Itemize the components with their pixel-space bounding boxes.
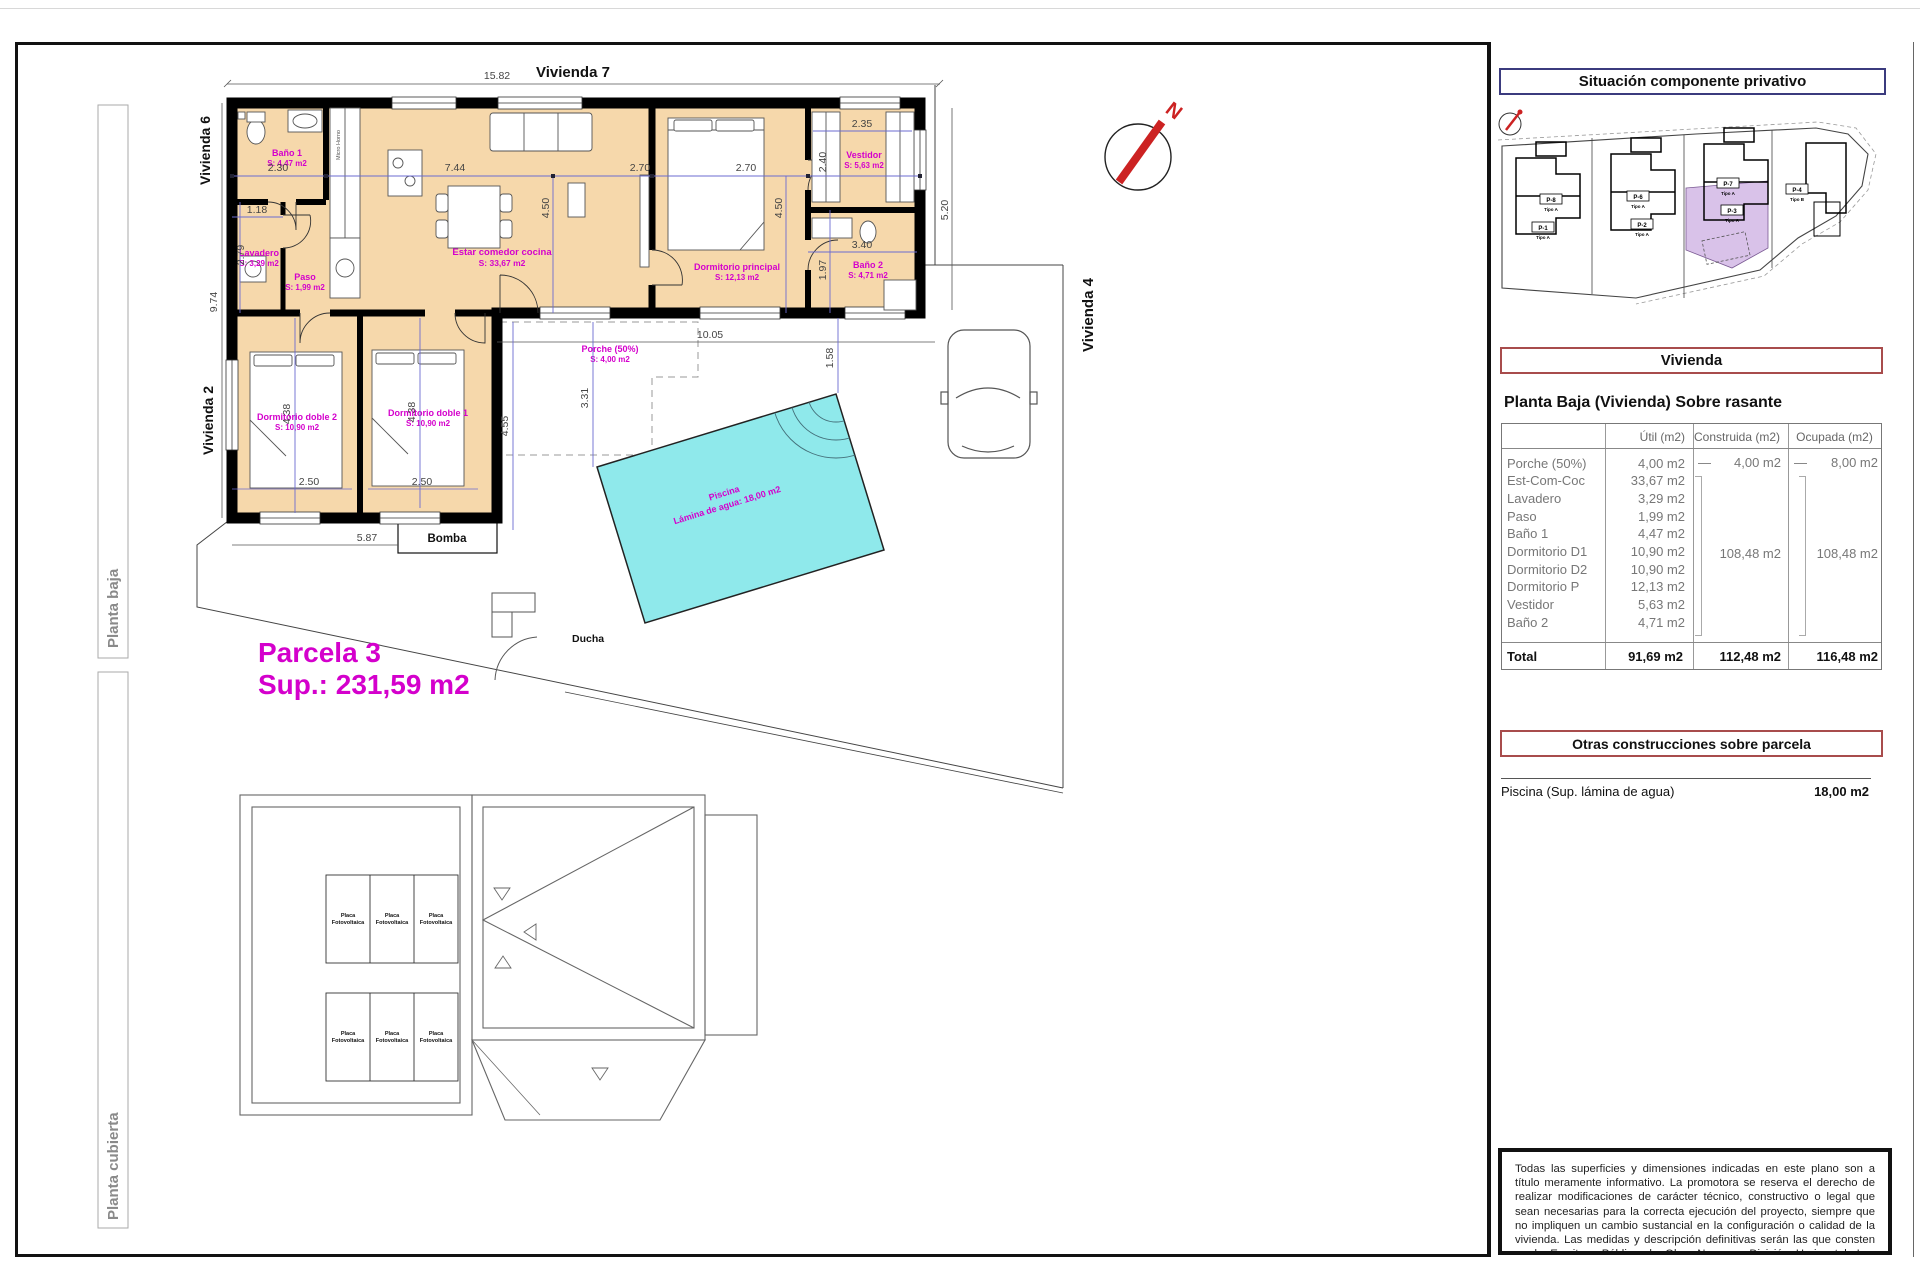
scan-top-line [0, 8, 1920, 9]
table-row: Baño 14,47 m2 [1502, 525, 1881, 543]
panel-label: Fotovoltaica [420, 920, 453, 926]
total-label: Total [1507, 649, 1537, 664]
table-row: Lavadero3,29 m2 [1502, 489, 1881, 507]
frame-outer-edge [1913, 42, 1914, 1257]
bomba-label: Bomba [428, 533, 468, 545]
car-icon [941, 330, 1037, 458]
dim-porche-h: 4.55 [499, 416, 511, 437]
dim-vest-w: 2.35 [852, 118, 873, 130]
info-sidebar: Situación componente privativo [1487, 42, 1905, 1257]
parcel-tipo: Tipo A [1635, 232, 1649, 237]
porche-construida: 4,00 m2 [1693, 455, 1781, 471]
ocupada-group-value: 108,48 m2 [1788, 546, 1878, 562]
panel-label: Fotovoltaica [332, 1038, 365, 1044]
panel-label: Fotovoltaica [376, 920, 409, 926]
shower-area [492, 593, 537, 680]
total-ocupada: 116,48 m2 [1788, 649, 1878, 664]
planta-cubierta-label: Planta cubierta [105, 1112, 122, 1220]
room-dormd1-name: Dormitorio doble 1 [388, 408, 468, 418]
dim-porche-w: 10.05 [697, 329, 723, 341]
room-paso-name: Paso [294, 272, 316, 282]
table-row: Baño 24,71 m2 [1502, 613, 1881, 631]
parcel-id: P-6 [1633, 195, 1643, 201]
room-bano1-name: Baño 1 [272, 148, 302, 158]
table-row: Dormitorio D210,90 m2 [1502, 560, 1881, 578]
dim-porche-h2: 3.31 [579, 388, 591, 409]
piscina-row-value: 18,00 m2 [1501, 784, 1869, 799]
ducha-label: Ducha [572, 633, 604, 645]
row-util: 10,90 m2 [1607, 544, 1693, 559]
parcel-tipo: Tipo A [1721, 191, 1735, 196]
room-bano2-area: S: 4,71 m2 [848, 271, 888, 280]
parcel-id: P-2 [1637, 223, 1647, 229]
parcel-tipo: Tipo B [1790, 197, 1805, 202]
row-name: Baño 1 [1502, 526, 1607, 541]
row-name: Vestidor [1502, 597, 1607, 612]
mini-compass-icon [1499, 110, 1523, 136]
otras-title-box: Otras construcciones sobre parcela [1500, 730, 1883, 757]
row-util: 10,90 m2 [1607, 562, 1693, 577]
col-header-construida: Construida (m2) [1686, 430, 1788, 444]
plan-sheet: Planta baja Planta cubierta Piscina Lámi… [0, 0, 1920, 1280]
row-name: Lavadero [1502, 491, 1607, 506]
parcel-id: P-7 [1723, 182, 1733, 188]
table-row: Paso1,99 m2 [1502, 507, 1881, 525]
dim-d1-w: 2.50 [412, 476, 433, 488]
row-util: 33,67 m2 [1607, 473, 1693, 488]
panel-label: Placa [385, 913, 400, 919]
roof-plan [240, 795, 757, 1120]
parcel-id: P-4 [1792, 188, 1802, 194]
parcel-tipo: Tipo A [1631, 204, 1645, 209]
panel-label: Fotovoltaica [420, 1038, 453, 1044]
row-name: Dormitorio P [1502, 579, 1607, 594]
plan-label-bars: Planta baja Planta cubierta [98, 105, 128, 1228]
north-compass-icon: N [1105, 98, 1186, 190]
row-name: Paso [1502, 509, 1607, 524]
parcel-tipo: Tipo A [1725, 218, 1739, 223]
planta-baja-heading: Planta Baja (Vivienda) Sobre rasante [1504, 394, 1782, 412]
porche-ocupada: 8,00 m2 [1788, 455, 1878, 471]
table-row: Est-Com-Coc33,67 m2 [1502, 472, 1881, 490]
table-row: Vestidor5,63 m2 [1502, 596, 1881, 614]
row-util: 12,13 m2 [1607, 579, 1693, 594]
dim-left-h: 9.74 [208, 292, 220, 313]
vivienda-title-box: Vivienda [1500, 347, 1883, 374]
construida-bracket-tick [1695, 476, 1702, 477]
total-util: 91,69 m2 [1605, 649, 1683, 664]
room-estar-area: S: 33,67 m2 [479, 258, 526, 268]
dim-porche-hr: 1.58 [824, 348, 836, 369]
total-construida: 112,48 m2 [1693, 649, 1781, 664]
situacion-title: Situación componente privativo [1579, 73, 1807, 90]
dim-right-h: 5.20 [939, 200, 951, 221]
room-porche-name: Porche (50%) [581, 344, 638, 354]
col-header-util: Útil (m2) [1605, 430, 1689, 444]
room-vestidor-name: Vestidor [846, 150, 882, 160]
dim-dorm-w: 2.70 [630, 162, 651, 174]
table-row: Dormitorio P12,13 m2 [1502, 578, 1881, 596]
site-houses [1516, 128, 1846, 236]
north-letter: N [1161, 98, 1186, 124]
floor-plan-canvas: Planta baja Planta cubierta Piscina Lámi… [15, 42, 1487, 1257]
legal-disclaimer: Todas las superficies y dimensiones indi… [1498, 1148, 1892, 1255]
site-plan-inset: P-8 P-1 P-6 P-2 P-7 P-3 P-4 Tipo A Tipo … [1496, 98, 1896, 308]
row-name: Est-Com-Coc [1502, 473, 1607, 488]
room-dormp-name: Dormitorio principal [694, 262, 780, 272]
panel-label: Placa [341, 913, 356, 919]
parcel-id: P-3 [1727, 209, 1737, 215]
room-vestidor-area: S: 5,63 m2 [844, 161, 884, 170]
dim-dorm-w2: 2.70 [736, 162, 757, 174]
dim-bottom-w: 5.87 [357, 532, 378, 544]
parcela-title: Parcela 3 [258, 637, 381, 668]
micro-horno-label: Micro Horno [336, 130, 342, 160]
parcela-sup: Sup.: 231,59 m2 [258, 669, 470, 700]
vivienda-title: Vivienda [1661, 352, 1722, 369]
row-name: Porche (50%) [1502, 456, 1607, 471]
dim-vest-h: 2.40 [817, 152, 829, 173]
ocupada-bracket-tick [1799, 476, 1806, 477]
dim-bano2-h: 1.97 [817, 260, 829, 281]
dim-estar-h: 4.50 [540, 198, 552, 219]
row-util: 4,71 m2 [1607, 615, 1693, 630]
construida-bracket-tick [1695, 635, 1702, 636]
dim-d1-h: 4.38 [406, 402, 418, 423]
dim-lav-w: 1.18 [247, 204, 268, 216]
piscina-divider [1501, 778, 1871, 779]
panel-label: Placa [429, 1031, 444, 1037]
room-porche-area: S: 4,00 m2 [590, 355, 630, 364]
row-name: Dormitorio D2 [1502, 562, 1607, 577]
parcel-tipo: Tipo A [1536, 235, 1550, 240]
row-util: 3,29 m2 [1607, 491, 1693, 506]
construida-group-value: 108,48 m2 [1693, 546, 1781, 562]
room-bano2-name: Baño 2 [853, 260, 883, 270]
dim-d2-h: 4.38 [281, 404, 293, 425]
dim-top-width: 15.82 [484, 70, 510, 82]
row-name: Baño 2 [1502, 615, 1607, 630]
row-util: 4,47 m2 [1607, 526, 1693, 541]
ocupada-bracket-tick [1799, 635, 1806, 636]
room-dormd2-name: Dormitorio doble 2 [257, 412, 337, 422]
row-util: 5,63 m2 [1607, 597, 1693, 612]
header-underline [1502, 448, 1881, 449]
panel-label: Fotovoltaica [376, 1038, 409, 1044]
panel-label: Placa [429, 913, 444, 919]
neighbor-vivienda7: Vivienda 7 [536, 64, 610, 81]
parcel-id: P-8 [1546, 198, 1556, 204]
neighbor-vivienda4: Vivienda 4 [1080, 277, 1097, 352]
row-name: Dormitorio D1 [1502, 544, 1607, 559]
neighbor-vivienda2: Vivienda 2 [200, 386, 216, 455]
dim-lav-h: 2.79 [235, 245, 247, 266]
solar-panels: PlacaFotovoltaica PlacaFotovoltaica Plac… [326, 875, 458, 1081]
parcel-id: P-1 [1538, 226, 1548, 232]
otras-title: Otras construcciones sobre parcela [1572, 736, 1811, 752]
panel-label: Fotovoltaica [332, 920, 365, 926]
surface-table: Útil (m2) Construida (m2) Ocupada (m2) P… [1501, 423, 1882, 670]
col-header-ocupada: Ocupada (m2) [1788, 430, 1881, 444]
row-util: 1,99 m2 [1607, 509, 1693, 524]
neighbor-vivienda6: Vivienda 6 [197, 116, 213, 185]
situacion-title-box: Situación componente privativo [1499, 68, 1886, 95]
total-separator [1502, 642, 1881, 643]
pool: Piscina Lámina de agua: 18,00 m2 [597, 330, 900, 623]
dim-estar-w: 7.44 [445, 162, 466, 174]
parcel-tipo: Tipo A [1544, 207, 1558, 212]
dim-d2-w: 2.50 [299, 476, 320, 488]
panel-label: Placa [385, 1031, 400, 1037]
room-dormp-area: S: 12,13 m2 [715, 273, 760, 282]
panel-label: Placa [341, 1031, 356, 1037]
dim-bano2-w: 3.40 [852, 239, 873, 251]
dim-dorm-h: 4.50 [773, 198, 785, 219]
room-estar-name: Estar comedor cocina [452, 247, 552, 258]
room-paso-area: S: 1,99 m2 [285, 283, 325, 292]
row-util: 4,00 m2 [1607, 456, 1693, 471]
planta-baja-label: Planta baja [105, 568, 122, 648]
dim-bano1-w: 2.30 [268, 162, 289, 174]
